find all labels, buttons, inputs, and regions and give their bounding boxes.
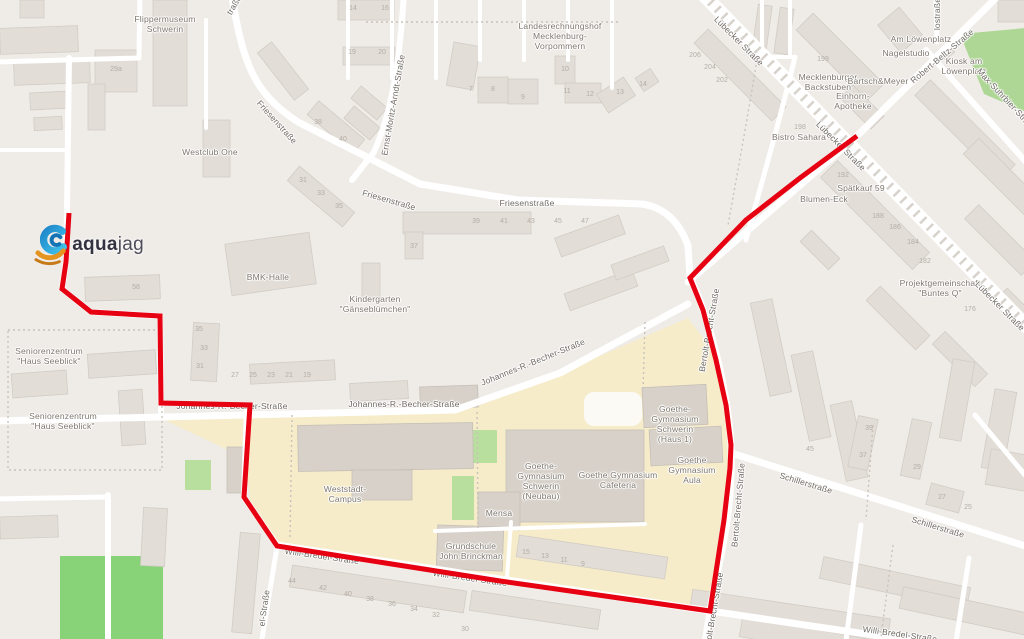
building <box>11 370 68 398</box>
building <box>998 0 1024 22</box>
building <box>0 515 58 539</box>
building <box>225 232 316 295</box>
logo-text-aqua: aqua <box>72 234 118 255</box>
building <box>597 77 636 113</box>
building <box>555 215 626 257</box>
building <box>791 351 831 442</box>
road <box>731 453 1024 549</box>
building <box>446 42 480 90</box>
building <box>250 360 336 384</box>
building <box>191 322 220 381</box>
building <box>14 61 91 86</box>
building <box>478 77 508 103</box>
building <box>939 359 975 442</box>
building <box>88 84 105 130</box>
building <box>87 350 157 379</box>
schoolyard <box>584 392 642 426</box>
campus-building <box>478 492 520 530</box>
building <box>343 47 395 65</box>
aquajag-marker[interactable]: aquajag <box>34 220 144 270</box>
building <box>405 232 423 259</box>
map[interactable]: Flippermuseum SchwerinWestclub OneLandes… <box>0 0 1024 639</box>
building <box>796 13 884 101</box>
building <box>866 286 930 350</box>
building <box>232 532 261 633</box>
building <box>469 591 601 630</box>
road <box>139 0 140 56</box>
campus-building <box>352 470 412 500</box>
building <box>30 91 71 110</box>
building <box>287 166 354 227</box>
building <box>20 0 44 18</box>
building <box>926 483 965 513</box>
aquajag-logo-icon <box>34 222 69 268</box>
building <box>0 26 78 55</box>
building <box>635 68 659 91</box>
building <box>878 7 923 53</box>
campus-building <box>506 430 644 522</box>
green-patch <box>185 460 211 490</box>
campus-building <box>298 422 474 471</box>
road <box>231 0 688 246</box>
road <box>936 0 937 42</box>
building <box>362 263 380 300</box>
building <box>153 0 187 106</box>
building <box>403 212 531 234</box>
building <box>508 79 538 104</box>
logo-text: aquajag <box>72 234 144 256</box>
campus-building <box>649 426 723 466</box>
building <box>900 419 932 480</box>
building <box>800 230 840 270</box>
building <box>85 275 161 302</box>
campus-building <box>642 384 708 427</box>
building <box>350 380 409 401</box>
green-patch <box>452 476 474 520</box>
building <box>555 56 575 84</box>
building <box>750 299 791 396</box>
building <box>565 83 601 103</box>
sports-field <box>60 556 163 639</box>
building <box>140 507 167 566</box>
road <box>261 547 277 639</box>
logo-text-jag: jag <box>118 234 144 255</box>
map-base-layer <box>0 0 1024 639</box>
building <box>34 116 63 130</box>
building <box>611 246 669 280</box>
road <box>0 497 108 499</box>
